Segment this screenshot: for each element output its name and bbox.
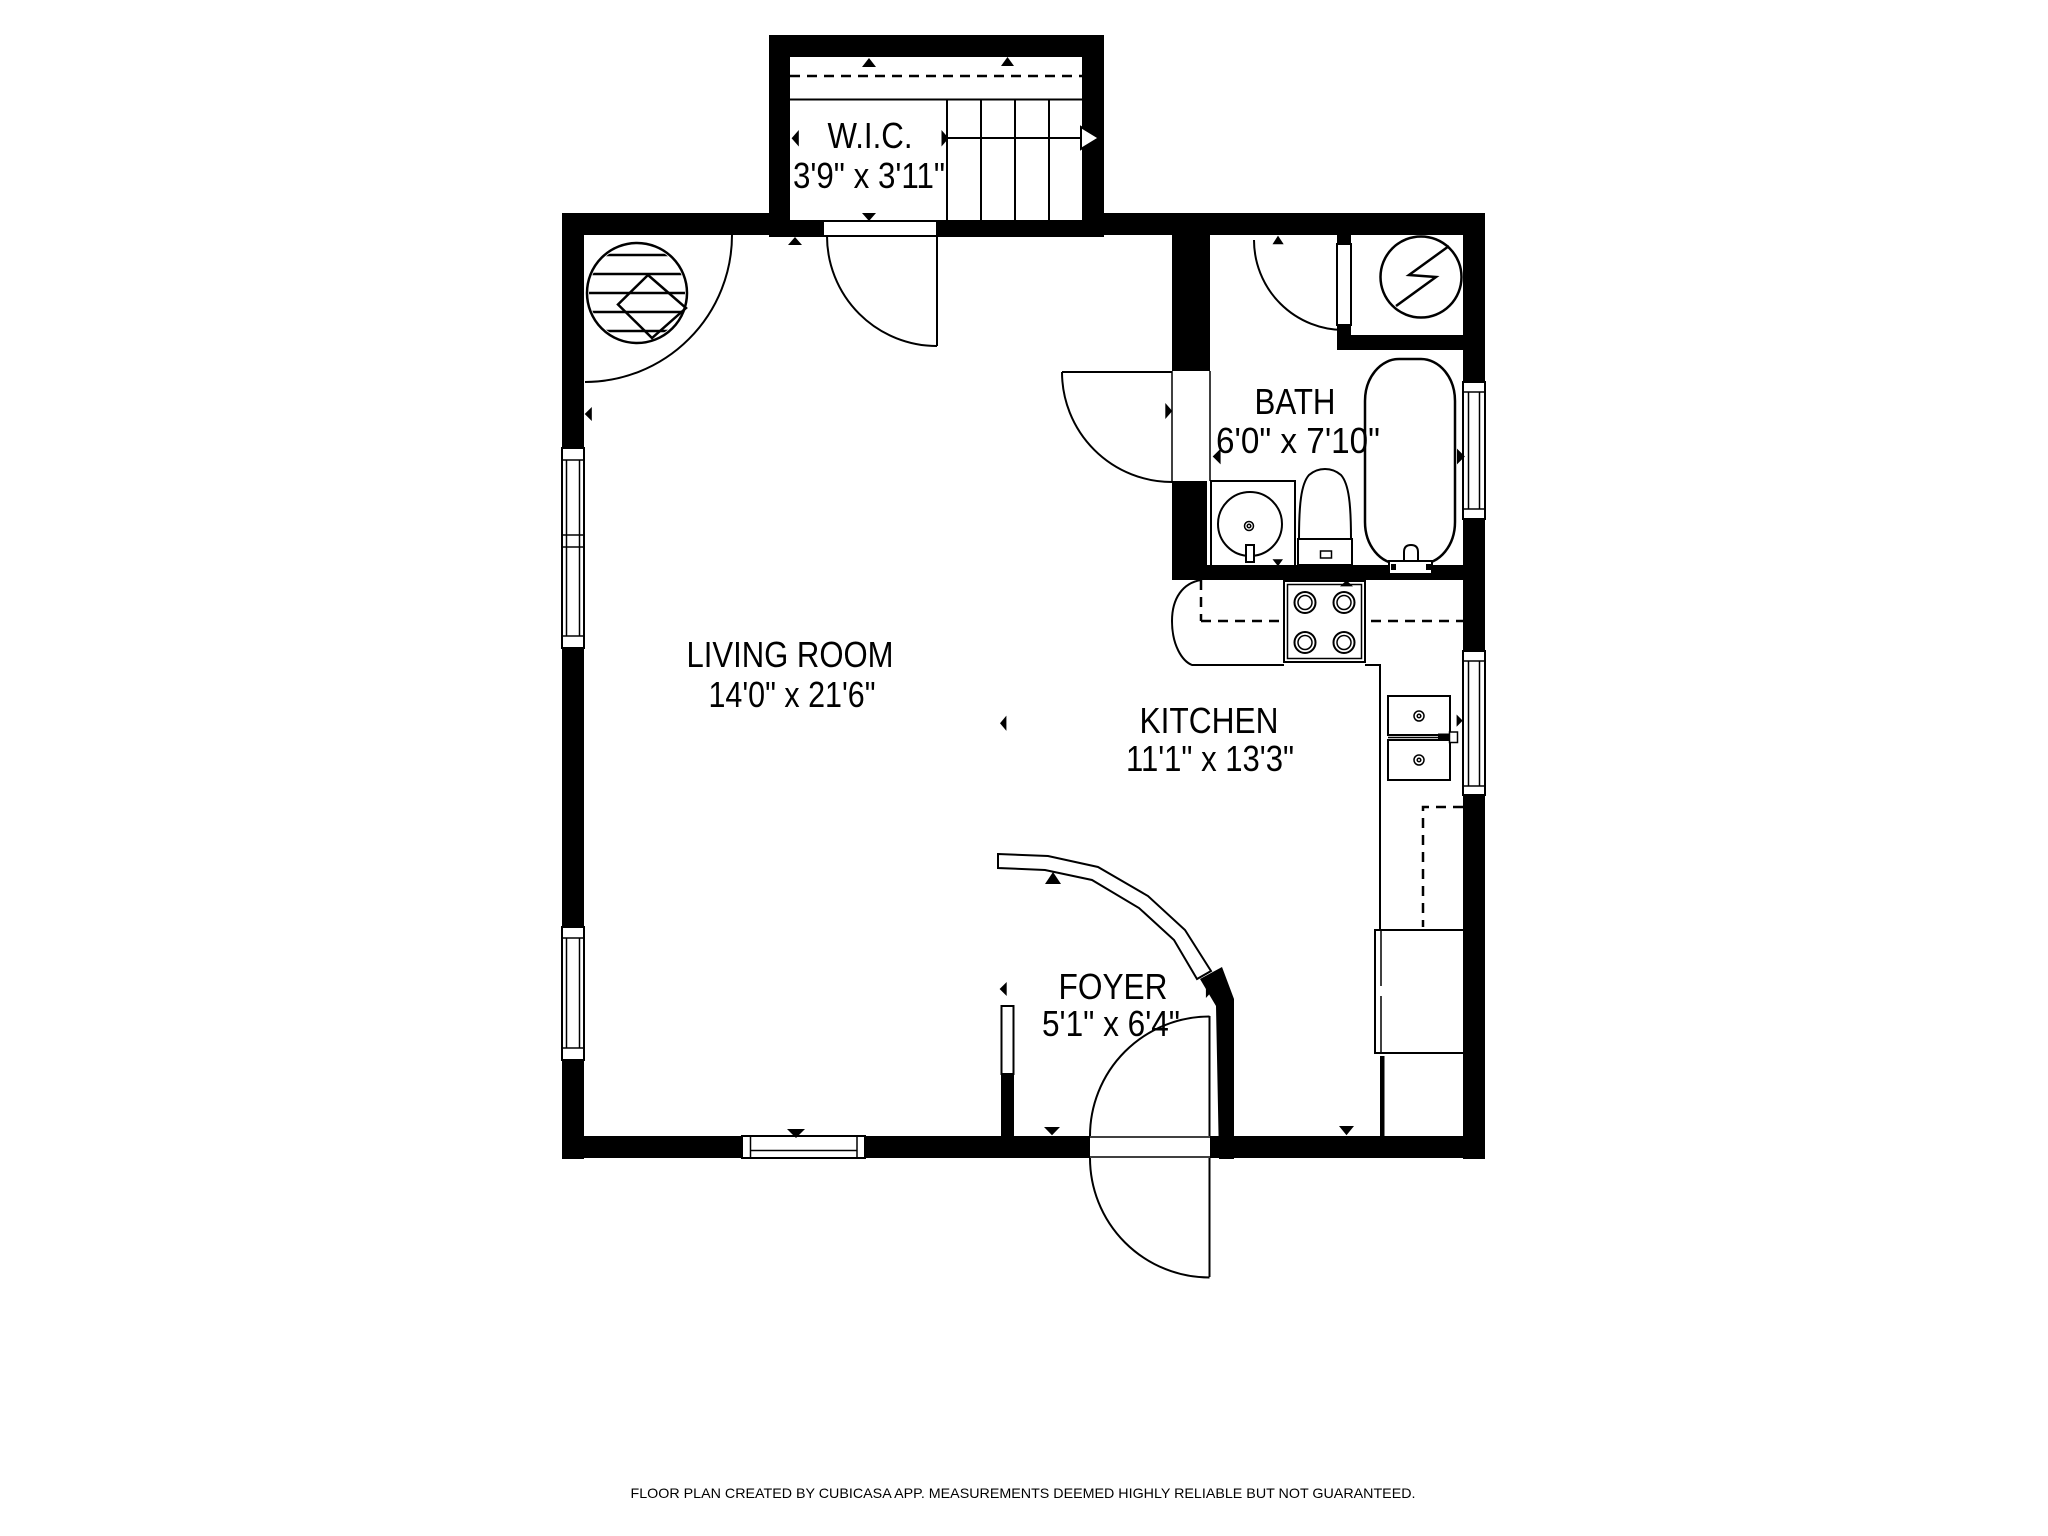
svg-text:W.I.C.: W.I.C.: [828, 115, 913, 156]
svg-text:6'0" x 7'10": 6'0" x 7'10": [1216, 420, 1380, 461]
svg-text:11'1" x 13'3": 11'1" x 13'3": [1126, 738, 1294, 779]
svg-text:5'1" x 6'4": 5'1" x 6'4": [1042, 1003, 1180, 1044]
svg-text:BATH: BATH: [1255, 381, 1336, 422]
svg-text:14'0" x 21'6": 14'0" x 21'6": [709, 674, 876, 715]
svg-text:FLOOR PLAN CREATED BY CUBICASA: FLOOR PLAN CREATED BY CUBICASA APP. MEAS…: [631, 1485, 1416, 1501]
svg-text:3'9" x 3'11": 3'9" x 3'11": [793, 155, 945, 196]
svg-text:KITCHEN: KITCHEN: [1140, 700, 1279, 741]
svg-text:LIVING ROOM: LIVING ROOM: [687, 634, 894, 675]
svg-text:FOYER: FOYER: [1059, 966, 1168, 1007]
